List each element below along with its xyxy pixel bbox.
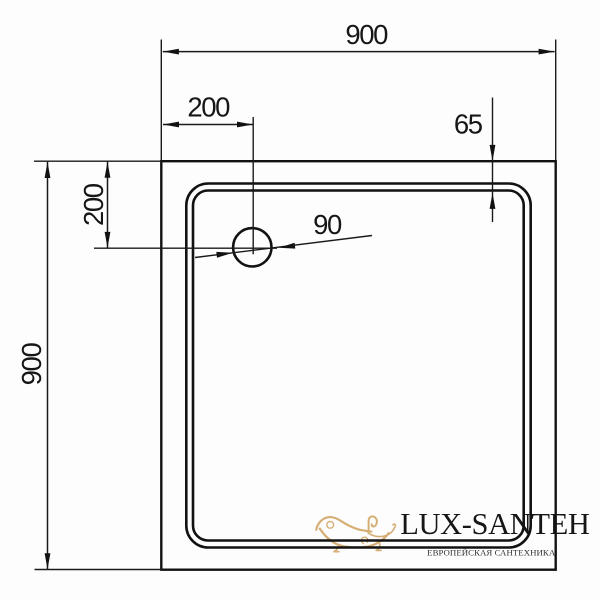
svg-text:90: 90 [313, 209, 342, 240]
svg-text:900: 900 [16, 343, 47, 386]
svg-text:65: 65 [454, 108, 483, 139]
svg-text:LUX-SANTEH: LUX-SANTEH [400, 507, 590, 541]
svg-text:200: 200 [187, 92, 230, 123]
svg-text:900: 900 [345, 19, 388, 50]
svg-text:200: 200 [78, 183, 109, 226]
